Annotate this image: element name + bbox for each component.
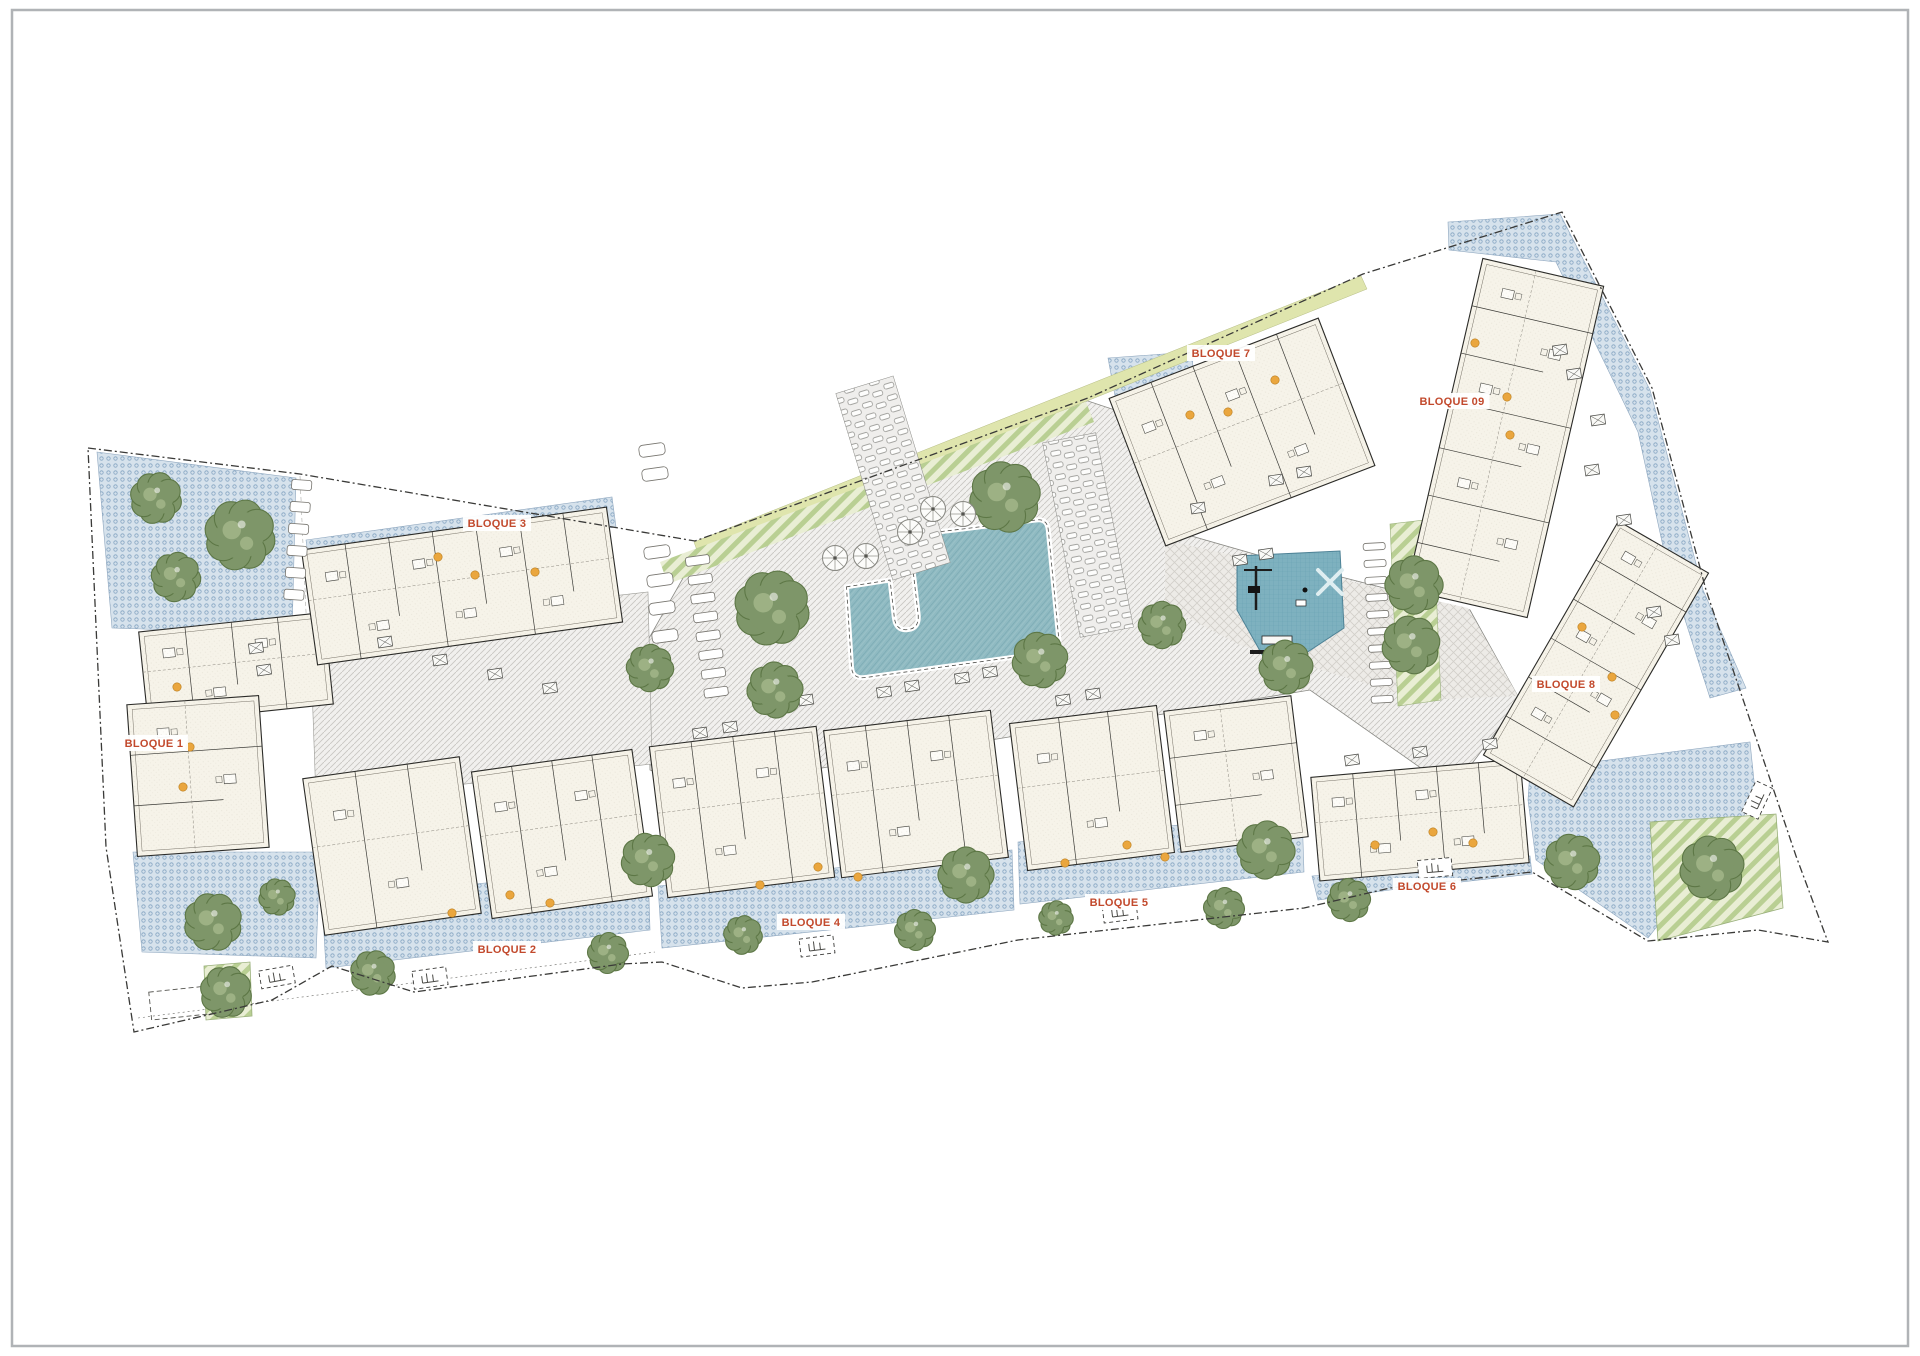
table-icon xyxy=(1268,474,1283,486)
tree-icon xyxy=(1039,901,1074,936)
table-icon xyxy=(1482,738,1497,750)
tree-icon xyxy=(1259,640,1313,694)
table-icon xyxy=(904,680,919,692)
tree-icon xyxy=(1382,616,1440,674)
tree-icon xyxy=(621,833,674,886)
tree-icon xyxy=(1680,836,1744,900)
table-icon xyxy=(954,672,969,684)
table-icon xyxy=(542,682,557,694)
entrance-door-marker xyxy=(1471,339,1479,347)
table-icon xyxy=(248,642,263,654)
tree-icon xyxy=(895,910,936,951)
table-icon xyxy=(432,654,447,666)
entrance-door-marker xyxy=(1371,841,1379,849)
entrance-door-marker xyxy=(1608,673,1616,681)
entrance-door-marker xyxy=(471,571,479,579)
table-icon xyxy=(377,636,392,648)
tree-icon xyxy=(626,644,673,691)
entrance-door-marker xyxy=(1271,376,1279,384)
table-icon xyxy=(982,666,997,678)
tree-icon xyxy=(1204,888,1245,929)
table-icon xyxy=(256,664,271,676)
entrance-door-marker xyxy=(1123,841,1131,849)
building-bloque-5a xyxy=(1010,706,1175,871)
entrance-door-marker xyxy=(756,881,764,889)
tree-icon xyxy=(724,916,763,955)
table-icon xyxy=(1584,464,1599,476)
bloque-1-label: BLOQUE 1 xyxy=(125,738,184,750)
tree-icon xyxy=(1237,821,1295,879)
building-bloque-1b xyxy=(127,696,269,857)
bloque-6-label: BLOQUE 6 xyxy=(1398,881,1457,893)
tree-icon xyxy=(151,552,200,601)
tree-icon xyxy=(970,462,1040,532)
bloque-2-label: BLOQUE 2 xyxy=(478,944,537,956)
tree-icon xyxy=(259,879,295,915)
table-icon xyxy=(876,686,891,698)
tree-icon xyxy=(747,662,803,718)
entrance-door-marker xyxy=(1224,408,1232,416)
parasol-icon xyxy=(951,502,976,527)
tree-icon xyxy=(1327,878,1370,921)
entrance-door-marker xyxy=(1469,839,1477,847)
tree-icon xyxy=(351,951,395,995)
table-icon xyxy=(1616,514,1631,526)
table-icon xyxy=(1296,466,1311,478)
tree-icon xyxy=(1385,556,1443,614)
table-icon xyxy=(1664,634,1679,646)
entrance-door-marker xyxy=(1503,393,1511,401)
site-plan-drawing: BLOQUE 1BLOQUE 2BLOQUE 3BLOQUE 4BLOQUE 5… xyxy=(0,0,1920,1356)
tree-icon xyxy=(938,847,994,903)
parasol-icon xyxy=(823,546,848,571)
tree-icon xyxy=(1138,601,1186,649)
entrance-door-marker xyxy=(814,863,822,871)
entrance-door-marker xyxy=(1611,711,1619,719)
table-icon xyxy=(1055,694,1070,706)
parasol-icon xyxy=(854,544,879,569)
table-icon xyxy=(487,668,502,680)
entrance-door-marker xyxy=(1578,623,1586,631)
table-icon xyxy=(1190,502,1205,514)
tree-icon xyxy=(205,500,275,570)
gate-icon xyxy=(1417,858,1452,879)
bloque-4-label: BLOQUE 4 xyxy=(782,917,841,929)
building-bloque-4a xyxy=(649,726,834,897)
entrance-door-marker xyxy=(546,899,554,907)
tree-icon xyxy=(131,473,182,524)
building-bloque-2b xyxy=(471,749,652,918)
tree-icon xyxy=(201,967,252,1018)
building-bloque-2a xyxy=(303,757,481,935)
table-icon xyxy=(722,721,737,733)
entrance-door-marker xyxy=(854,873,862,881)
entrance-door-marker xyxy=(1429,828,1437,836)
entrance-door-marker xyxy=(506,891,514,899)
entrance-door-marker xyxy=(1506,431,1514,439)
table-icon xyxy=(1232,554,1247,566)
entrance-door-marker xyxy=(434,553,442,561)
entrance-door-marker xyxy=(1061,859,1069,867)
bloque-09-label: BLOQUE 09 xyxy=(1419,396,1484,408)
table-icon xyxy=(1344,754,1359,766)
site-plan-page: BLOQUE 1BLOQUE 2BLOQUE 3BLOQUE 4BLOQUE 5… xyxy=(0,0,1920,1356)
table-icon xyxy=(1258,548,1273,560)
bloque-8-label: BLOQUE 8 xyxy=(1537,679,1596,691)
bloque-3-label: BLOQUE 3 xyxy=(468,518,527,530)
entrance-door-marker xyxy=(179,783,187,791)
entrance-door-marker xyxy=(531,568,539,576)
table-icon xyxy=(1590,414,1605,426)
entrance-door-marker xyxy=(448,909,456,917)
table-icon xyxy=(1646,606,1661,618)
table-icon xyxy=(1566,368,1581,380)
parasol-icon xyxy=(898,520,923,545)
entrance-door-marker xyxy=(1186,411,1194,419)
table-icon xyxy=(1085,688,1100,700)
table-icon xyxy=(692,727,707,739)
table-icon xyxy=(1552,344,1567,356)
tree-icon xyxy=(1012,632,1067,687)
parasol-icon xyxy=(921,497,946,522)
bloque-5-label: BLOQUE 5 xyxy=(1090,897,1149,909)
table-icon xyxy=(1412,746,1427,758)
entrance-door-marker xyxy=(1161,853,1169,861)
bloque-7-label: BLOQUE 7 xyxy=(1192,348,1251,360)
entrance-door-marker xyxy=(173,683,181,691)
tree-icon xyxy=(1544,834,1599,889)
